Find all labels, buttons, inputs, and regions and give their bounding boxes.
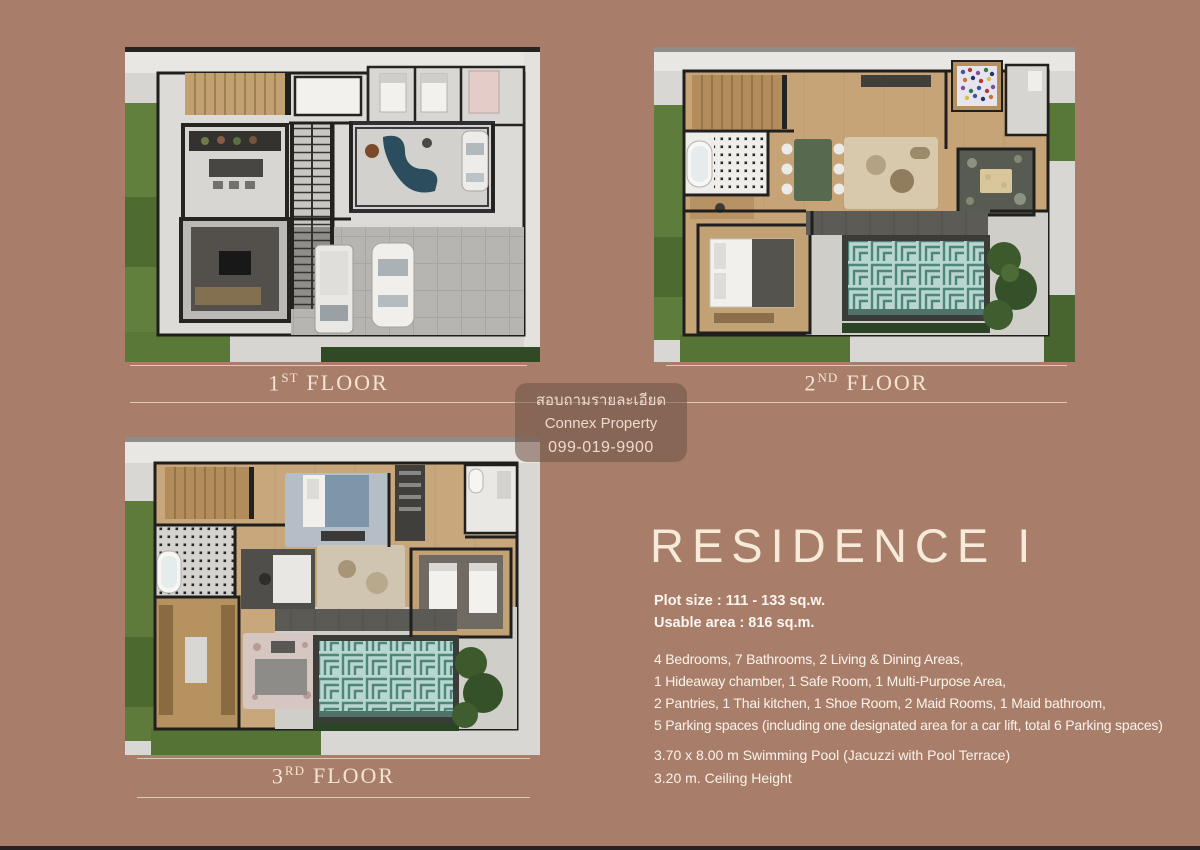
parked-car bbox=[372, 243, 414, 327]
floor-3-word: FLOOR bbox=[313, 763, 395, 788]
pool-deck bbox=[275, 609, 457, 631]
floor-2-word: FLOOR bbox=[846, 370, 928, 395]
residence-title: RESIDENCE I bbox=[650, 518, 1038, 573]
floor-plan-1-render bbox=[125, 47, 540, 362]
swimming-pool bbox=[313, 635, 459, 731]
center-rug bbox=[317, 545, 405, 609]
floor-1-number: 1 bbox=[268, 370, 281, 395]
living-room bbox=[351, 123, 493, 211]
lounge bbox=[181, 219, 289, 321]
residence-specs: Plot size : 111 - 133 sq.w. Usable area … bbox=[654, 590, 825, 634]
hall-right bbox=[1006, 65, 1048, 135]
swimming-pool bbox=[842, 235, 990, 333]
floor-2-number: 2 bbox=[805, 370, 818, 395]
floor-3-label: 3RDFLOOR bbox=[137, 763, 530, 789]
floor-2-label: 2NDFLOOR bbox=[666, 370, 1067, 396]
bottom-edge-bar bbox=[0, 846, 1200, 850]
ceiling-spec: 3.20 m. Ceiling Height bbox=[654, 767, 1010, 790]
floor-plan-2-render bbox=[654, 47, 1075, 362]
staircase bbox=[185, 73, 291, 115]
feature-line: 5 Parking spaces (including one designat… bbox=[654, 714, 1163, 736]
divider-line bbox=[666, 365, 1067, 366]
residence-features: 4 Bedrooms, 7 Bathrooms, 2 Living & Dini… bbox=[654, 648, 1163, 736]
watermark-phone: 099-019-9900 bbox=[515, 436, 687, 461]
ball-pit bbox=[952, 61, 1002, 111]
floor-3-ordinal: RD bbox=[285, 763, 305, 778]
brochure-page: 1STFLOOR 2NDFLOOR 3RDFLOOR สอบถามรายละเอ… bbox=[0, 0, 1200, 850]
residence-extras: 3.70 x 8.00 m Swimming Pool (Jacuzzi wit… bbox=[654, 744, 1010, 790]
car-on-lift bbox=[462, 131, 488, 191]
living-rug bbox=[844, 137, 938, 209]
floor-1-ordinal: ST bbox=[281, 370, 298, 385]
divider-line bbox=[130, 365, 527, 366]
floor-2-ordinal: ND bbox=[818, 370, 839, 385]
bedroom bbox=[698, 225, 810, 333]
contact-watermark: สอบถามรายละเอียด Connex Property 099-019… bbox=[515, 383, 687, 462]
lounge bbox=[243, 633, 319, 709]
divider-line bbox=[137, 797, 530, 798]
usable-area: Usable area : 816 sq.m. bbox=[654, 612, 825, 634]
floor-3-number: 3 bbox=[272, 763, 285, 788]
pool-spec: 3.70 x 8.00 m Swimming Pool (Jacuzzi wit… bbox=[654, 744, 1010, 767]
divider-line bbox=[137, 758, 530, 759]
feature-line: 2 Pantries, 1 Thai kitchen, 1 Shoe Room,… bbox=[654, 692, 1163, 714]
maid-rooms bbox=[368, 67, 524, 125]
master-bedroom bbox=[285, 473, 389, 547]
staircase bbox=[692, 75, 787, 129]
parked-van bbox=[315, 245, 353, 333]
staircase bbox=[165, 467, 254, 519]
floor-plan-3-render bbox=[125, 437, 540, 755]
plot-size: Plot size : 111 - 133 sq.w. bbox=[654, 590, 825, 612]
family-room bbox=[958, 149, 1034, 215]
floor-1-word: FLOOR bbox=[307, 370, 389, 395]
pool-deck bbox=[806, 211, 988, 235]
bathroom bbox=[684, 131, 768, 195]
dining-table bbox=[782, 139, 845, 201]
feature-line: 1 Hideaway chamber, 1 Safe Room, 1 Multi… bbox=[654, 670, 1163, 692]
walk-in-closet bbox=[155, 525, 235, 597]
watermark-company: Connex Property bbox=[515, 412, 687, 435]
floor-1-label: 1STFLOOR bbox=[130, 370, 527, 396]
pantry-corridor bbox=[155, 597, 239, 729]
watermark-thai-line: สอบถามรายละเอียด bbox=[515, 389, 687, 412]
kitchen-dining bbox=[183, 125, 287, 219]
feature-line: 4 Bedrooms, 7 Bathrooms, 2 Living & Dini… bbox=[654, 648, 1163, 670]
study-area bbox=[241, 549, 315, 609]
